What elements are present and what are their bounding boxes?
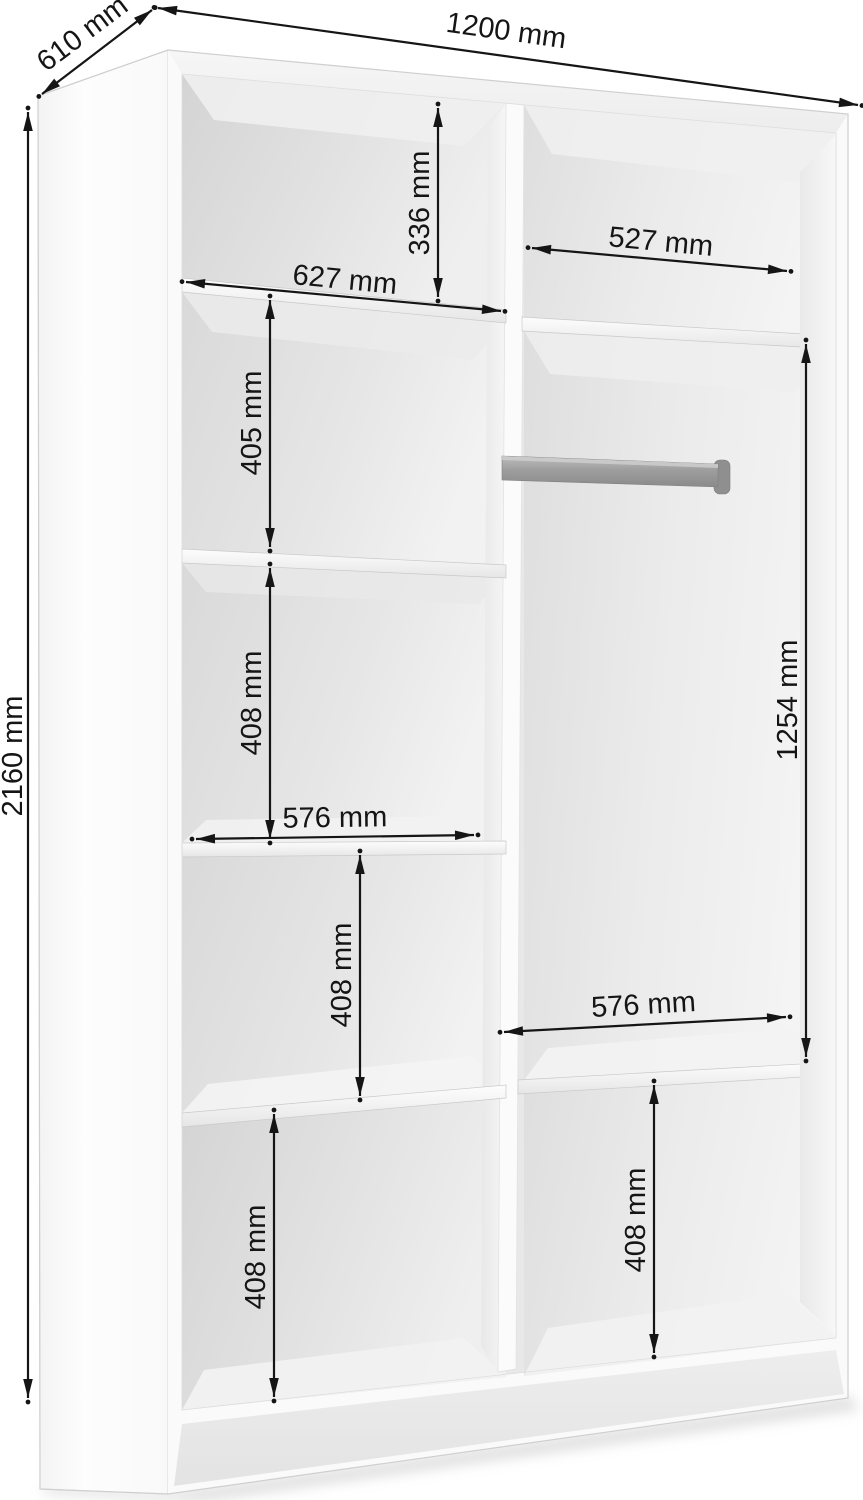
dim-overall-height: 2160 mm [0, 112, 29, 1398]
dim-left-shelf-gap-3-label: 408 mm [326, 923, 358, 1028]
dim-overall-depth-label: 610 mm [31, 0, 134, 78]
dim-right-bottom-section-label: 408 mm [620, 1168, 652, 1273]
wardrobe-dimension-diagram: 1200 mm 610 mm 2160 mm 336 mm 627 mm 527… [0, 0, 863, 1500]
dim-overall-height-label: 2160 mm [0, 696, 29, 817]
diagram-canvas: 1200 mm 610 mm 2160 mm 336 mm 627 mm 527… [0, 0, 863, 1500]
dim-left-shelf-gap-2-label: 408 mm [236, 651, 268, 756]
dim-top-left-section-label: 336 mm [404, 151, 436, 256]
dim-left-shelf-gap-1-label: 405 mm [236, 371, 268, 476]
dim-hanging-section-label: 1254 mm [772, 640, 804, 761]
shelf-front-edge [182, 841, 506, 857]
dim-overall-width-label: 1200 mm [444, 7, 568, 56]
dim-left-bottom-section-label: 408 mm [240, 1205, 272, 1310]
dim-left-lower-width-label: 576 mm [282, 801, 387, 834]
side-panel [38, 50, 168, 1494]
dim-right-lower-width-label: 576 mm [590, 986, 696, 1024]
